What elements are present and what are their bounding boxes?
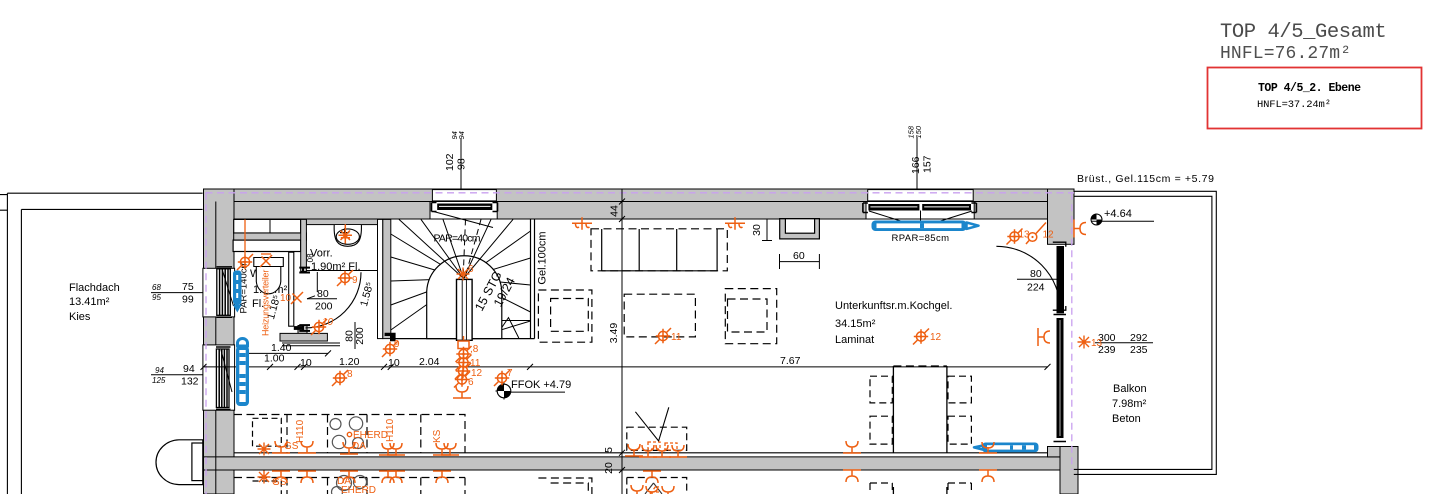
svg-text:,8: ,8 bbox=[470, 344, 479, 355]
svg-text:60: 60 bbox=[793, 250, 805, 262]
svg-text:8: 8 bbox=[347, 369, 353, 380]
svg-text:12: 12 bbox=[1043, 230, 1055, 241]
svg-text:150: 150 bbox=[914, 125, 923, 138]
svg-text:224: 224 bbox=[1027, 282, 1045, 294]
svg-text:3.49: 3.49 bbox=[608, 323, 620, 344]
svg-text:HNFL=76.27m²: HNFL=76.27m² bbox=[1220, 44, 1351, 64]
svg-text:292: 292 bbox=[1130, 332, 1148, 344]
svg-text:FFOK +4.79: FFOK +4.79 bbox=[511, 379, 571, 391]
svg-text:7.98m²: 7.98m² bbox=[1112, 398, 1147, 410]
svg-text:Heizungsverteiler: Heizungsverteiler bbox=[261, 270, 271, 336]
svg-text:20: 20 bbox=[603, 462, 615, 474]
svg-text:11: 11 bbox=[671, 332, 682, 343]
svg-text:34.15m²: 34.15m² bbox=[835, 318, 876, 330]
svg-text:TOP 4/5_Gesamt: TOP 4/5_Gesamt bbox=[1220, 21, 1386, 44]
svg-text:Flachdach: Flachdach bbox=[69, 282, 120, 294]
svg-text:1.00: 1.00 bbox=[264, 353, 285, 365]
svg-text:H110: H110 bbox=[295, 419, 306, 443]
svg-text:6: 6 bbox=[468, 264, 474, 275]
svg-text:Laminat: Laminat bbox=[835, 334, 874, 346]
svg-text:68: 68 bbox=[152, 283, 161, 292]
svg-text:132: 132 bbox=[181, 376, 199, 388]
svg-text:12: 12 bbox=[930, 332, 942, 343]
svg-text:PAR=40cm: PAR=40cm bbox=[434, 233, 481, 245]
svg-text:10: 10 bbox=[300, 357, 312, 369]
svg-text:200: 200 bbox=[354, 327, 366, 345]
svg-text:157: 157 bbox=[922, 155, 934, 173]
svg-text:44: 44 bbox=[609, 205, 621, 217]
svg-text:10: 10 bbox=[322, 317, 334, 328]
svg-text:98: 98 bbox=[456, 158, 468, 170]
svg-text:6: 6 bbox=[468, 377, 474, 388]
svg-text:9: 9 bbox=[394, 339, 400, 350]
svg-text:HNFL=37.24m²: HNFL=37.24m² bbox=[1257, 99, 1331, 111]
svg-text:80: 80 bbox=[317, 288, 329, 300]
svg-text:30: 30 bbox=[751, 224, 763, 236]
svg-text:Balkon: Balkon bbox=[1113, 383, 1147, 395]
svg-text:94: 94 bbox=[457, 131, 466, 139]
svg-text:Brüst., Gel.115cm = +5.79: Brüst., Gel.115cm = +5.79 bbox=[1077, 173, 1214, 185]
svg-text:166: 166 bbox=[910, 156, 922, 174]
svg-text:GS: GS bbox=[272, 477, 287, 488]
svg-text:2.04: 2.04 bbox=[419, 356, 440, 368]
svg-text:RPAR=85cm: RPAR=85cm bbox=[892, 233, 950, 244]
svg-text:DA: DA bbox=[352, 441, 366, 452]
svg-text:H110: H110 bbox=[385, 418, 396, 442]
svg-text:75: 75 bbox=[182, 281, 194, 293]
svg-text:5: 5 bbox=[603, 447, 615, 453]
svg-text:+4.64: +4.64 bbox=[1104, 208, 1132, 220]
svg-text:125: 125 bbox=[152, 376, 166, 385]
svg-text:Vorr.: Vorr. bbox=[310, 248, 333, 260]
svg-text:94: 94 bbox=[183, 363, 195, 375]
svg-text:95: 95 bbox=[152, 293, 161, 302]
svg-text:7.67: 7.67 bbox=[780, 355, 801, 367]
svg-text:Unterkunftsr.m.Kochgel.: Unterkunftsr.m.Kochgel. bbox=[835, 300, 952, 312]
svg-text:200: 200 bbox=[315, 300, 333, 312]
svg-text:99: 99 bbox=[182, 294, 194, 306]
svg-text:DA: DA bbox=[337, 476, 351, 487]
svg-text:7: 7 bbox=[507, 368, 513, 379]
svg-text:235: 235 bbox=[1130, 344, 1148, 356]
svg-text:Beton: Beton bbox=[1112, 413, 1141, 425]
svg-text:Gel.100cm: Gel.100cm bbox=[537, 231, 549, 284]
svg-text:13.41m²: 13.41m² bbox=[69, 296, 110, 308]
svg-text:10: 10 bbox=[388, 357, 400, 369]
svg-text:KS: KS bbox=[432, 429, 443, 443]
svg-text:1.20: 1.20 bbox=[339, 356, 360, 368]
svg-text:TOP 4/5_2. Ebene: TOP 4/5_2. Ebene bbox=[1258, 82, 1361, 95]
svg-text:94: 94 bbox=[155, 366, 164, 375]
svg-text:13: 13 bbox=[1091, 338, 1103, 349]
svg-text:1.90m² Fl.: 1.90m² Fl. bbox=[311, 261, 361, 273]
svg-text:9: 9 bbox=[352, 275, 358, 286]
svg-text:EHERD: EHERD bbox=[353, 430, 388, 441]
svg-text:Kies: Kies bbox=[69, 311, 91, 323]
svg-text:10: 10 bbox=[280, 293, 292, 304]
svg-text:80: 80 bbox=[1030, 268, 1042, 280]
svg-text:102: 102 bbox=[444, 153, 456, 171]
